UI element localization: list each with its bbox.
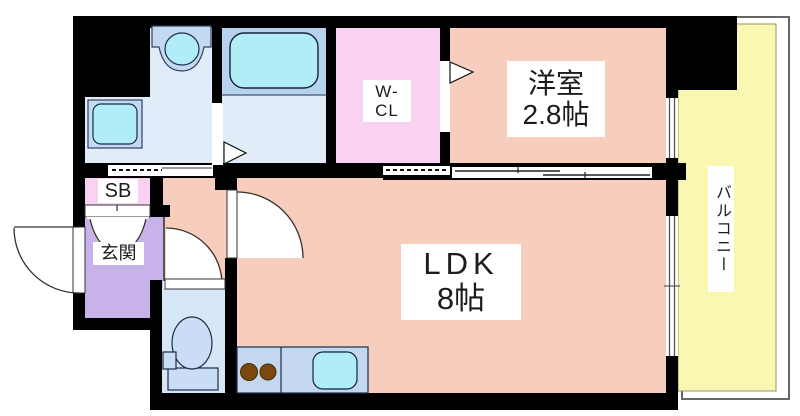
western-room-name: 洋室 xyxy=(528,68,584,99)
wall-toilet-right xyxy=(225,258,237,395)
stove-burner-right xyxy=(260,364,276,380)
window-western-room xyxy=(666,98,678,158)
floorplan: SB 玄関 W- CL 洋室 2.8帖 LDK 8帖 バルコニー xyxy=(0,0,800,416)
entrance-text: 玄関 xyxy=(101,243,137,263)
toilet-tank xyxy=(168,368,218,390)
kitchen-counter xyxy=(237,347,368,393)
walk-in-closet-text-line2: CL xyxy=(375,101,399,120)
shoe-box-text: SB xyxy=(105,180,132,202)
wall-bathroom-closet xyxy=(326,26,336,163)
wall-top xyxy=(150,16,678,28)
label-shoe-box: SB xyxy=(98,179,138,203)
wall-ldk-door-stub xyxy=(215,163,237,190)
label-balcony: バルコニー xyxy=(708,166,734,292)
western-room-size: 2.8帖 xyxy=(523,99,590,130)
stove-burner-left xyxy=(241,364,258,381)
floorplan-drawing xyxy=(0,0,800,416)
label-entrance: 玄関 xyxy=(93,242,144,265)
entrance-front-door xyxy=(14,227,85,293)
wall-balcony-block xyxy=(678,16,737,90)
wall-closet-opening-bottom-edge xyxy=(383,175,450,180)
washroom-sliding-door xyxy=(108,165,213,176)
bathtub xyxy=(230,33,318,88)
ldk-name: LDK xyxy=(423,247,498,282)
western-room-sliding-partition xyxy=(452,167,652,178)
washing-machine-pan xyxy=(88,100,142,148)
wall-entrance-bottom xyxy=(73,318,162,330)
label-ldk: LDK 8帖 xyxy=(401,244,521,320)
wall-toilet-left xyxy=(150,280,162,395)
toilet-flush-handle xyxy=(163,352,176,369)
balcony-text: バルコニー xyxy=(712,184,730,274)
wall-entrance-stub xyxy=(150,205,170,217)
wall-bottom xyxy=(150,393,678,410)
window-ldk xyxy=(664,216,680,356)
walk-in-closet-text-line1: W- xyxy=(375,82,398,101)
label-western-room: 洋室 2.8帖 xyxy=(507,61,605,137)
wall-closet-opening-top-edge xyxy=(383,163,450,166)
ldk-size: 8帖 xyxy=(437,282,485,317)
vanity-basin xyxy=(165,33,199,65)
kitchen-sink xyxy=(313,352,357,389)
label-walk-in-closet: W- CL xyxy=(363,80,411,122)
toilet-bowl xyxy=(172,317,212,369)
